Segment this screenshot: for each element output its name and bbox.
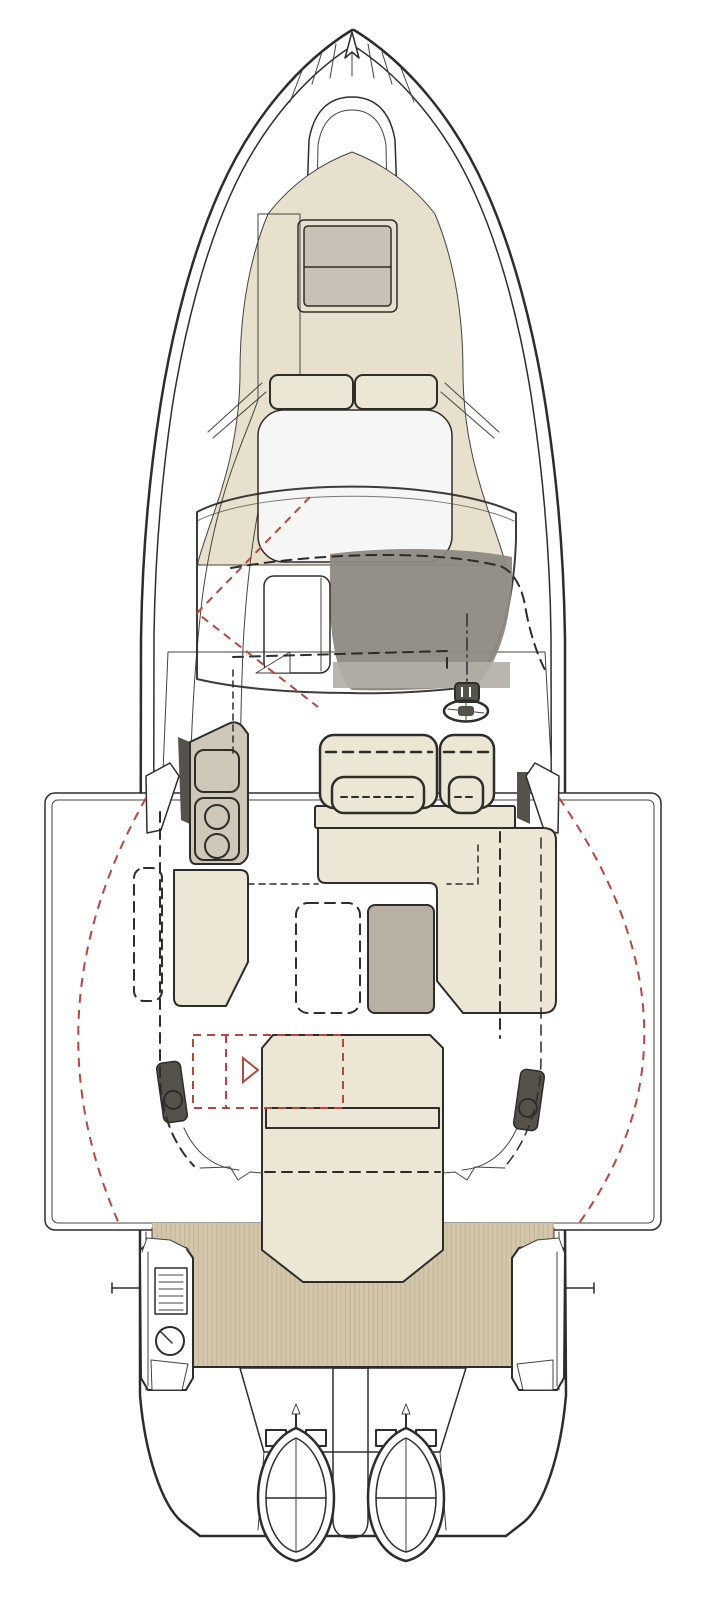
deck-plan — [0, 0, 706, 1600]
starboard-console-base-panel — [517, 1360, 553, 1390]
aft-sunpad — [262, 1035, 443, 1282]
bow-seat-cushion-starboard — [355, 375, 437, 409]
aft-sunpad-backrest — [266, 1108, 439, 1128]
transom-console-starboard — [512, 1238, 565, 1390]
cockpit-table — [368, 905, 434, 1013]
port-seat — [174, 870, 248, 1006]
bow-seat-cushion-port — [270, 375, 353, 409]
helm-bench-bolster — [332, 777, 424, 813]
galley-sink — [195, 750, 239, 792]
wet-bar-console — [140, 1238, 193, 1390]
helm-console-step — [333, 662, 510, 688]
deck-plan-drawing — [0, 0, 706, 1600]
wet-bar-base-panel — [151, 1360, 188, 1390]
helm-companion-bolster — [449, 777, 483, 813]
bow-hatch — [304, 226, 391, 306]
throttle-control — [455, 683, 479, 702]
